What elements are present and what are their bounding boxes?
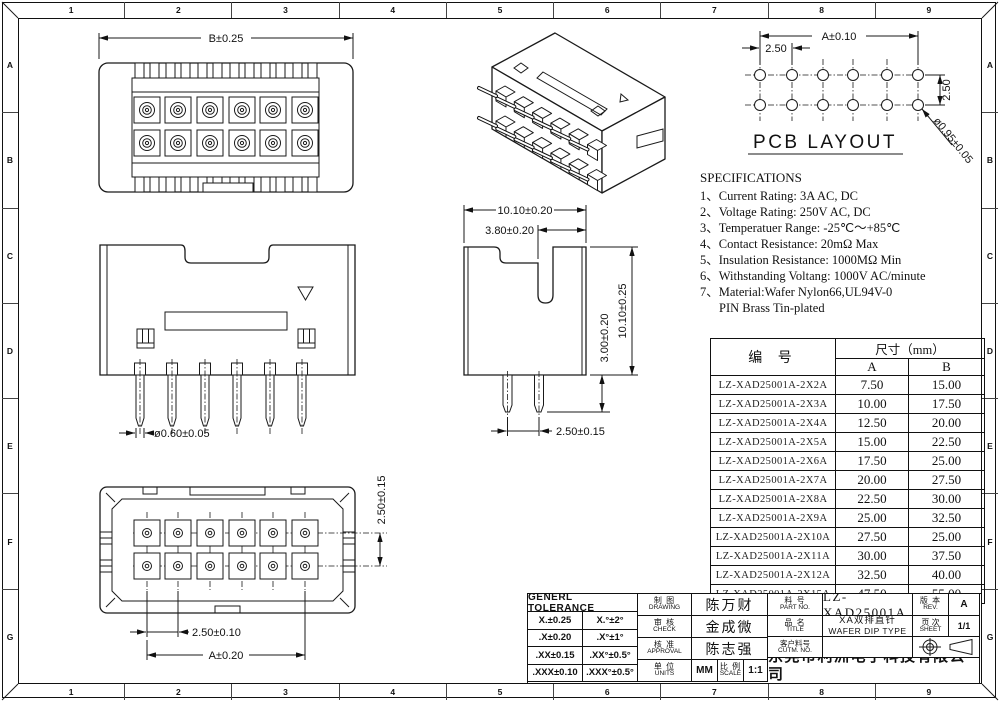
frame-ruler-left: A B C D E F G	[2, 18, 18, 684]
customer-no-label-en: CUTM. NO.	[778, 648, 812, 655]
dim-a-value: 17.50	[836, 452, 909, 471]
zone-label: G	[2, 589, 18, 684]
profile-view-drawing: 10.10±0.20 3.80±0.20 10.10±0.25 3.00±0.2…	[440, 195, 685, 450]
zone-label: 2	[124, 2, 231, 18]
tolerance-header: GENERL TOLERANCE	[528, 594, 638, 612]
approval-role-en: APPROVAL	[647, 649, 682, 656]
sheet-value: 1/1	[949, 616, 980, 637]
customer-no-label: 客户料号 CUTM. NO.	[768, 637, 823, 658]
bottom-row-pitch-dim-label: 2.50±0.15	[376, 476, 388, 525]
table-row: LZ-XAD25001A-2X3A10.0017.50	[711, 395, 985, 414]
zone-label: D	[2, 303, 18, 398]
part-no-label-en: PART NO.	[780, 605, 810, 612]
part-number: LZ-XAD25001A-2X4A	[711, 414, 836, 433]
table-row: LZ-XAD25001A-2X7A20.0027.50	[711, 471, 985, 490]
scale-value: 1:1	[744, 660, 768, 682]
dim-b-value: 25.00	[909, 452, 985, 471]
tolerance-value: X.°±2°	[583, 612, 638, 630]
zone-label: 1	[18, 2, 124, 18]
dim-b-value: 40.00	[909, 566, 985, 585]
tolerance-value: .XX±0.15	[528, 647, 583, 665]
dim-b-value: 17.50	[909, 395, 985, 414]
part-number: LZ-XAD25001A-2X2A	[711, 376, 836, 395]
zone-label: B	[2, 112, 18, 207]
sheet-label-en: SHEET	[920, 627, 942, 634]
part-number: LZ-XAD25001A-2X7A	[711, 471, 836, 490]
zone-label: 8	[768, 684, 875, 700]
part-number: LZ-XAD25001A-2X9A	[711, 509, 836, 528]
table-header-row: 编 号 尺寸（mm）	[711, 339, 985, 359]
scale-label-en: SCALE	[720, 671, 741, 678]
pcb-row-pitch-dim-label: 2.50	[941, 79, 953, 100]
drawing-person-name: 陈万财	[692, 594, 768, 616]
dim-b-value: 20.00	[909, 414, 985, 433]
profile-height-dim-label: 10.10±0.25	[617, 284, 629, 339]
tolerance-value: .X°±1°	[583, 630, 638, 648]
title-block: GENERL TOLERANCE X.±0.25 X.°±2° .X±0.20 …	[527, 593, 982, 684]
third-angle-projection-icon	[916, 637, 976, 657]
specifications-block: SPECIFICATIONS 1、Current Rating: 3A AC, …	[700, 170, 988, 316]
isometric-view-drawing	[475, 20, 690, 205]
dim-b-value: 30.00	[909, 490, 985, 509]
dim-a-value: 20.00	[836, 471, 909, 490]
units-value: MM	[692, 660, 718, 682]
approval-role-label: 核 准 APPROVAL	[638, 638, 692, 660]
col-b-header: B	[909, 359, 985, 376]
table-row: LZ-XAD25001A-2X5A15.0022.50	[711, 433, 985, 452]
spec-item: 7、Material:Wafer Nylon66,UL94V-0	[700, 284, 988, 300]
company-block: 东莞市利洲电子科技有限公司 DONGGUAN LIZHOU EL ECTRONI…	[768, 658, 980, 684]
dim-a-value: 22.50	[836, 490, 909, 509]
dim-b-value: 25.00	[909, 528, 985, 547]
size-header: 尺寸（mm）	[836, 339, 985, 359]
tolerance-value: .XX°±0.5°	[583, 647, 638, 665]
spec-item: 3、Temperatuer Range: -25℃～+85℃	[700, 220, 988, 236]
engineering-drawing-sheet: 1 2 3 4 5 6 7 8 9 1 2 3 4 5 6 7 8 9 A B …	[0, 0, 1000, 702]
frame-ruler-bottom: 1 2 3 4 5 6 7 8 9	[18, 684, 982, 700]
projection-symbol-cell	[913, 637, 980, 658]
spec-item: 6、Withstanding Voltang: 1000V AC/minute	[700, 268, 988, 284]
dim-b-value: 32.50	[909, 509, 985, 528]
zone-label: 3	[231, 684, 338, 700]
front-width-dim-label: B±0.25	[209, 33, 244, 45]
tolerance-value: .X±0.20	[528, 630, 583, 648]
zone-label: A	[2, 18, 18, 112]
zone-label: 4	[339, 684, 446, 700]
dim-a-value: 30.00	[836, 547, 909, 566]
check-person-name: 金成微	[692, 616, 768, 638]
part-no-label: 料 号 PART NO.	[768, 594, 823, 616]
dim-b-value: 22.50	[909, 433, 985, 452]
zone-label: 3	[231, 2, 338, 18]
dim-b-value: 37.50	[909, 547, 985, 566]
customer-no-value	[823, 637, 913, 658]
table-row: LZ-XAD25001A-2X6A17.5025.00	[711, 452, 985, 471]
part-number: LZ-XAD25001A-2X6A	[711, 452, 836, 471]
part-number: LZ-XAD25001A-2X12A	[711, 566, 836, 585]
pin-diameter-dim-label: ø0.60±0.05	[154, 428, 210, 440]
table-row: LZ-XAD25001A-2X2A7.5015.00	[711, 376, 985, 395]
part-size-table: 编 号 尺寸（mm） A B LZ-XAD25001A-2X2A7.5015.0…	[710, 338, 985, 604]
zone-label: 7	[660, 684, 767, 700]
table-row: LZ-XAD25001A-2X12A32.5040.00	[711, 566, 985, 585]
product-name-en: WAFER DIP TYPE	[828, 627, 906, 636]
units-label: 单 位 UNITS	[638, 660, 692, 682]
zone-label: E	[2, 398, 18, 493]
pcb-span-dim-label: A±0.10	[822, 31, 857, 43]
check-role-label: 审 核 CHECK	[638, 616, 692, 638]
profile-pin-length-dim-label: 3.00±0.20	[599, 314, 611, 363]
bottom-view-drawing: 2.50±0.15 2.50±0.10 A±0.20	[75, 460, 395, 670]
pcb-hole-dia-label: ø0.95±0.05	[931, 115, 975, 166]
profile-slot-dim-label: 3.80±0.20	[485, 225, 534, 237]
tolerance-value: .XXX±0.10	[528, 665, 583, 683]
part-no-value: LZ-XAD25001A	[823, 594, 913, 616]
tolerance-value: .XXX°±0.5°	[583, 665, 638, 683]
zone-label: 1	[18, 684, 124, 700]
table-row: LZ-XAD25001A-2X4A12.5020.00	[711, 414, 985, 433]
rev-value: A	[949, 594, 980, 616]
zone-label: F	[2, 493, 18, 588]
pcb-layout-drawing: A±0.10 2.50 2.50 ø0.95±0.05 PCB LAYOUT	[700, 15, 990, 165]
product-name: XA双排直针 WAFER DIP TYPE	[823, 616, 913, 637]
rev-label: 版 本 REV.	[913, 594, 949, 616]
side-view-drawing: ø0.60±0.05	[85, 235, 385, 450]
part-number: LZ-XAD25001A-2X5A	[711, 433, 836, 452]
profile-width-dim-label: 10.10±0.20	[498, 205, 553, 217]
spec-item: 4、Contact Resistance: 20mΩ Max	[700, 236, 988, 252]
part-number: LZ-XAD25001A-2X8A	[711, 490, 836, 509]
part-number: LZ-XAD25001A-2X3A	[711, 395, 836, 414]
units-label-en: UNITS	[655, 671, 675, 678]
dim-a-value: 15.00	[836, 433, 909, 452]
part-number: LZ-XAD25001A-2X10A	[711, 528, 836, 547]
zone-label: 9	[875, 684, 982, 700]
spec-item: PIN Brass Tin-plated	[700, 300, 988, 316]
bottom-pin-pitch-dim-label: 2.50±0.10	[192, 627, 241, 639]
dim-a-value: 12.50	[836, 414, 909, 433]
rev-label-en: REV.	[923, 605, 938, 612]
table-row: LZ-XAD25001A-2X8A22.5030.00	[711, 490, 985, 509]
product-label-en: TITLE	[786, 627, 804, 634]
front-view-drawing: B±0.25	[85, 25, 375, 205]
bottom-span-dim-label: A±0.20	[209, 650, 244, 662]
table-row: LZ-XAD25001A-2X10A27.5025.00	[711, 528, 985, 547]
pcb-pitch-dim-label: 2.50	[765, 43, 786, 55]
dim-a-value: 7.50	[836, 376, 909, 395]
zone-label: 5	[446, 684, 553, 700]
table-row: LZ-XAD25001A-2X9A25.0032.50	[711, 509, 985, 528]
pcb-layout-caption: PCB LAYOUT	[753, 132, 897, 153]
zone-label: C	[2, 208, 18, 303]
profile-pin-pitch-dim-label: 2.50±0.15	[556, 426, 605, 438]
approval-person-name: 陈志强	[692, 638, 768, 660]
zone-label: 5	[446, 2, 553, 18]
table-row: LZ-XAD25001A-2X11A30.0037.50	[711, 547, 985, 566]
part-number-header: 编 号	[711, 339, 836, 376]
product-label: 品 名 TITLE	[768, 616, 823, 637]
tolerance-value: X.±0.25	[528, 612, 583, 630]
dim-b-value: 27.50	[909, 471, 985, 490]
spec-item: 5、Insulation Resistance: 1000MΩ Min	[700, 252, 988, 268]
zone-label: 6	[553, 2, 660, 18]
zone-label: 2	[124, 684, 231, 700]
specifications-title: SPECIFICATIONS	[700, 170, 988, 186]
dim-a-value: 32.50	[836, 566, 909, 585]
company-name-zh: 东莞市利洲电子科技有限公司	[768, 658, 979, 684]
part-number: LZ-XAD25001A-2X11A	[711, 547, 836, 566]
dim-b-value: 15.00	[909, 376, 985, 395]
spec-item: 2、Voltage Rating: 250V AC, DC	[700, 204, 988, 220]
spec-item: 1、Current Rating: 3A AC, DC	[700, 188, 988, 204]
col-a-header: A	[836, 359, 909, 376]
drawing-role-en: DRAWING	[649, 605, 680, 612]
drawing-role-label: 制 图 DRAWING	[638, 594, 692, 616]
zone-label: 4	[339, 2, 446, 18]
scale-label: 比 例 SCALE	[718, 660, 744, 682]
dim-a-value: 10.00	[836, 395, 909, 414]
zone-label: 6	[553, 684, 660, 700]
dim-a-value: 25.00	[836, 509, 909, 528]
sheet-label: 页 次 SHEET	[913, 616, 949, 637]
dim-a-value: 27.50	[836, 528, 909, 547]
check-role-en: CHECK	[653, 627, 676, 634]
product-name-zh: XA双排直针	[839, 616, 896, 626]
